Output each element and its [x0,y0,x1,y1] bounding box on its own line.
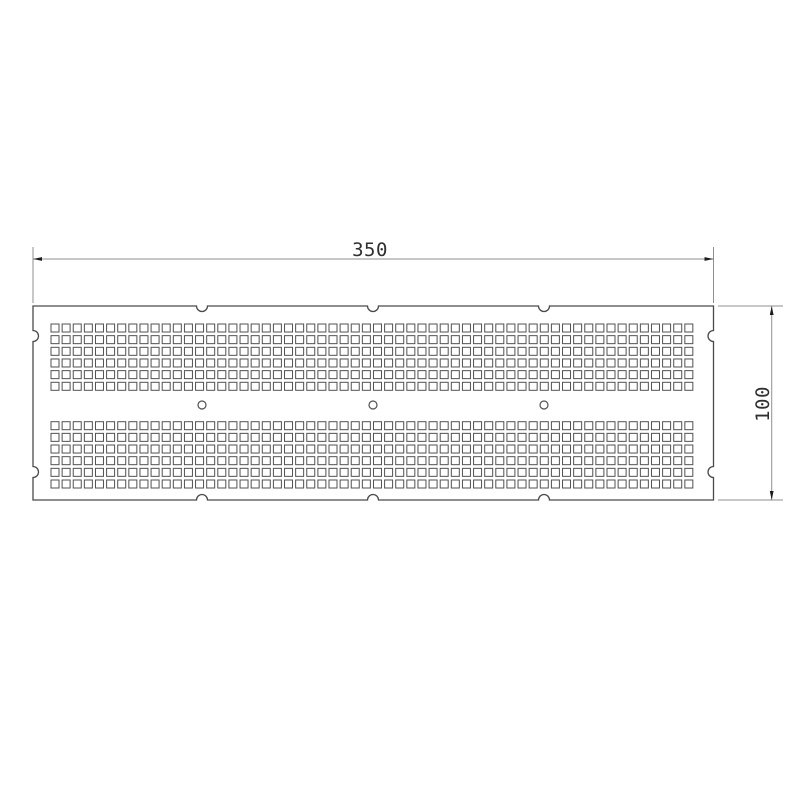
height-dimension-label: 100 [752,386,774,422]
width-arrow-right [705,257,714,261]
height-arrow-bottom [770,491,774,500]
width-arrow-left [33,257,42,261]
width-dimension: 350 [33,239,714,303]
drawing-canvas: 350 100 [0,0,800,800]
width-dimension-label: 350 [352,239,388,261]
technical-drawing: 350 100 [0,0,800,800]
plate [33,306,714,500]
height-arrow-top [770,306,774,315]
height-dimension: 100 [718,306,783,500]
